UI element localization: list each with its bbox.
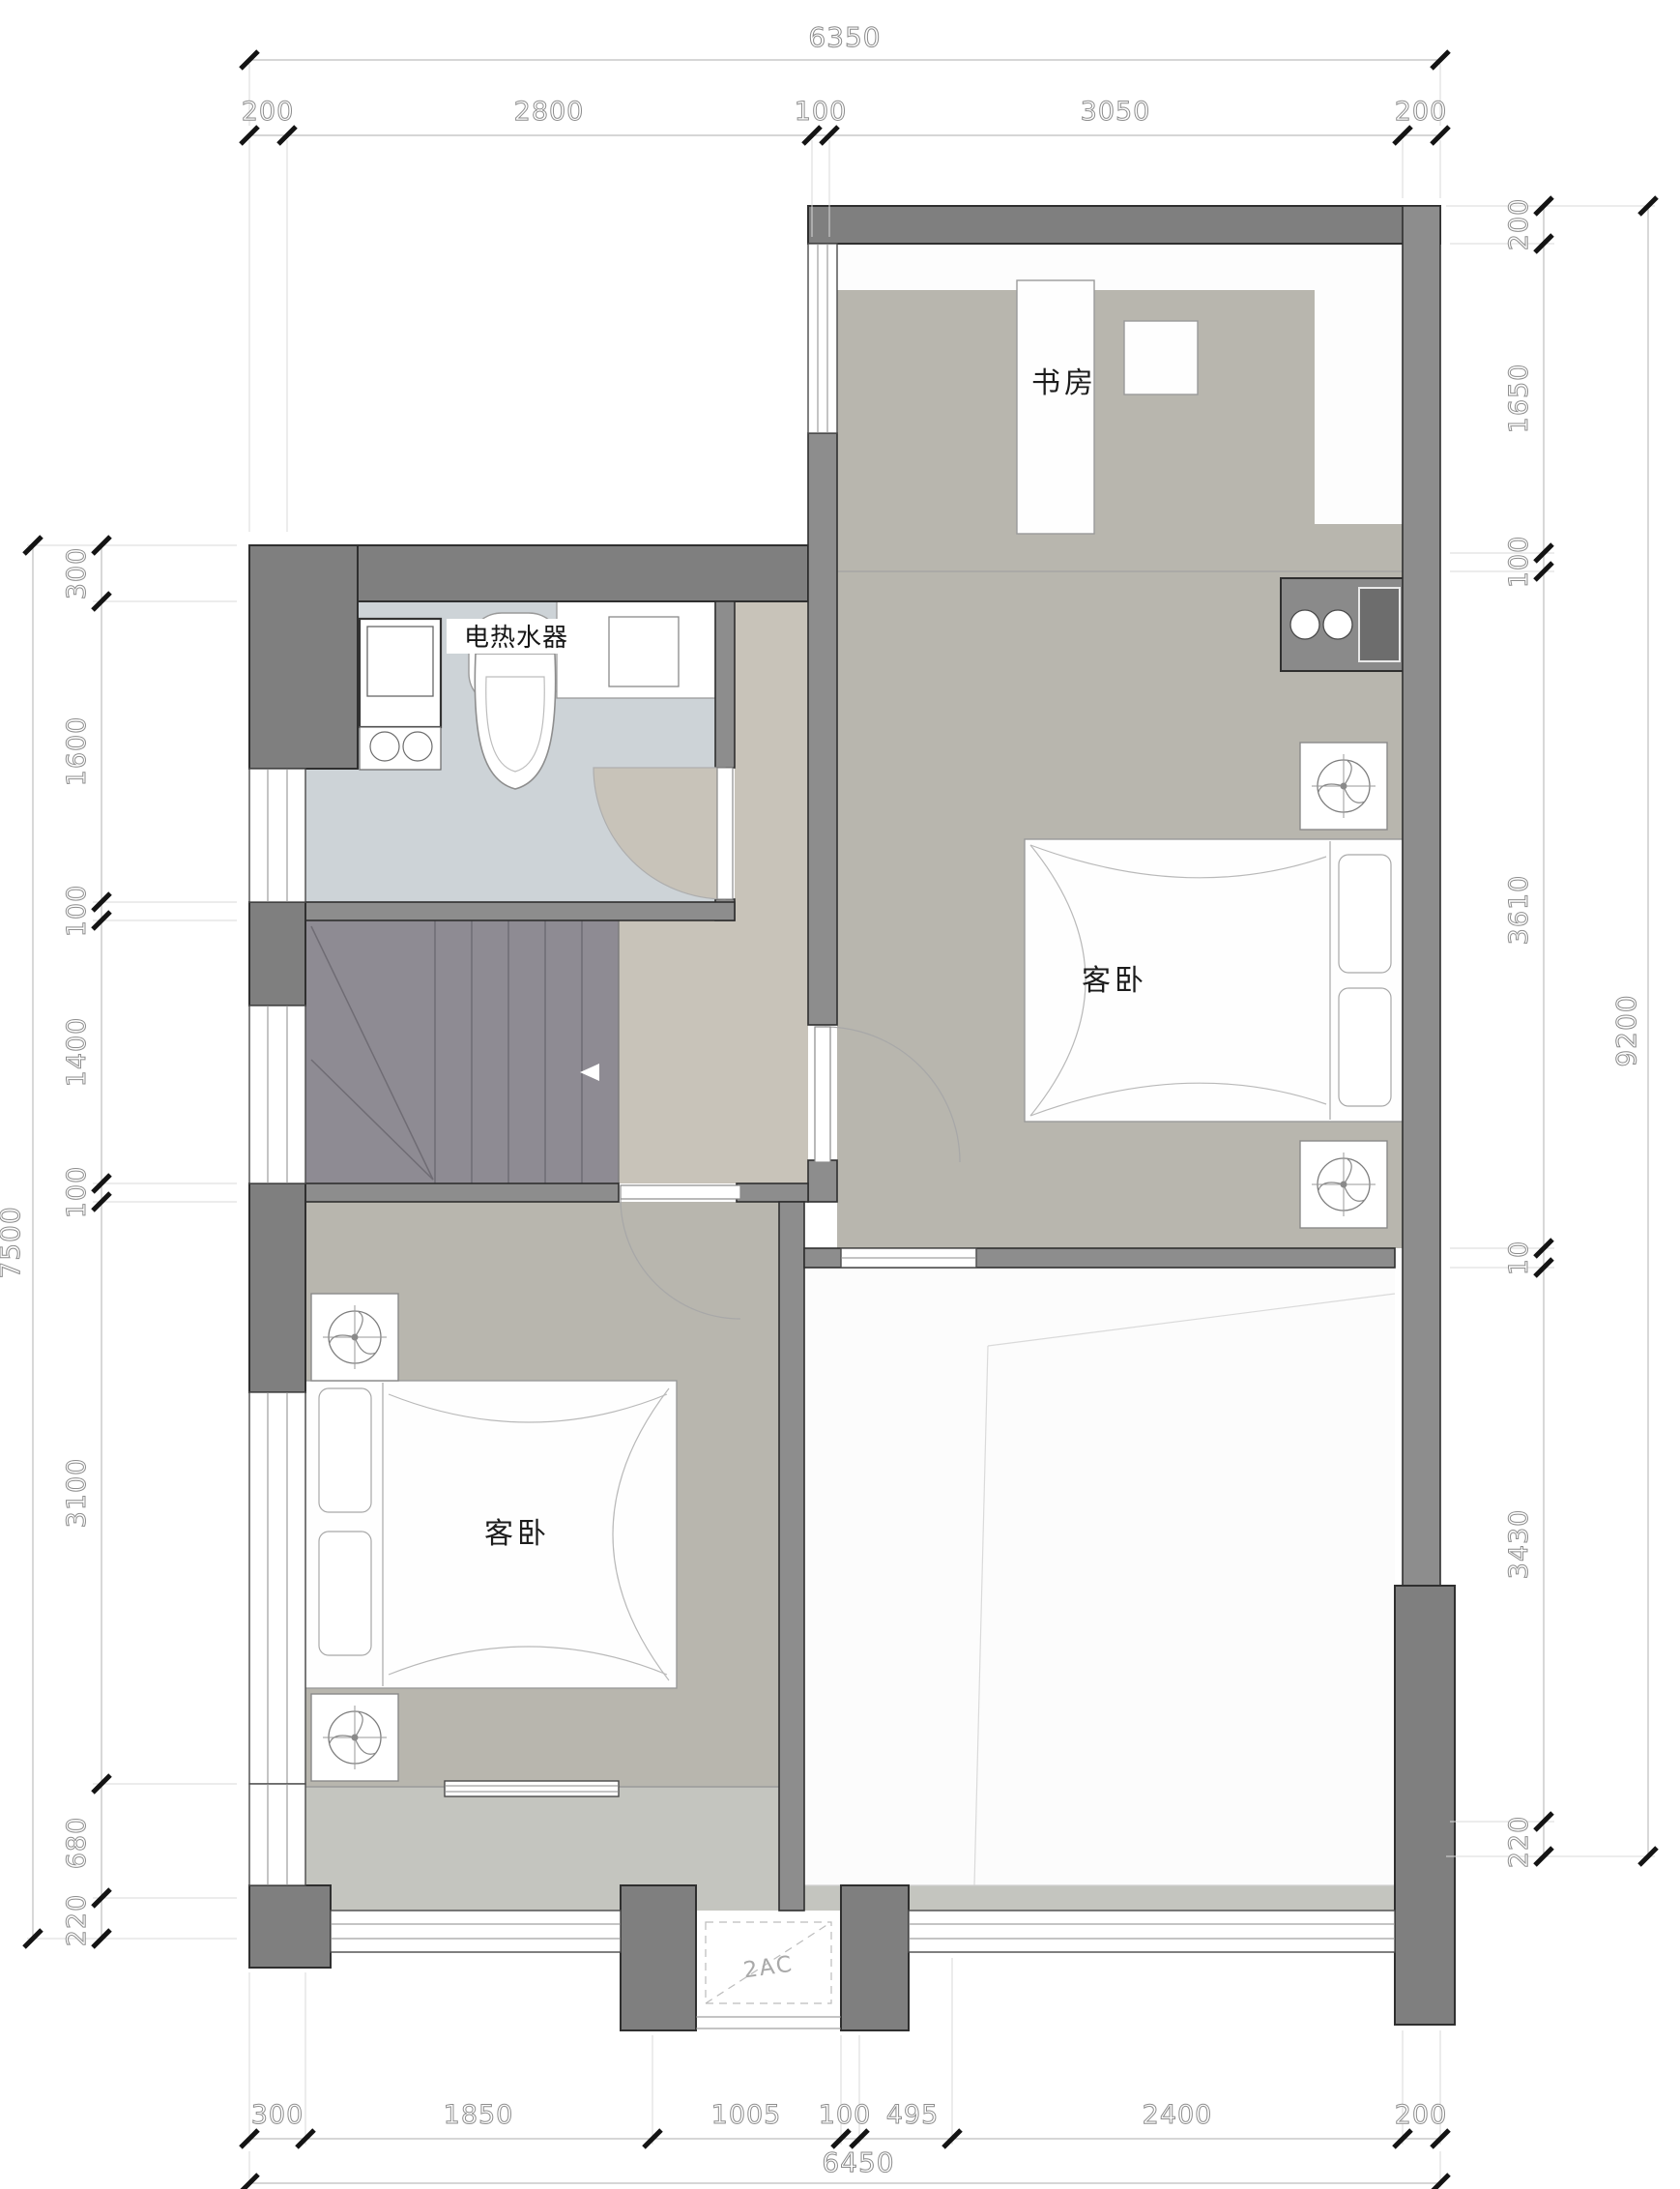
dim-label: 495 — [886, 2100, 940, 2130]
dim-label: 100 — [62, 1166, 92, 1219]
pillow — [319, 1532, 371, 1655]
pillow — [1339, 988, 1391, 1106]
dim-label: 3100 — [62, 1458, 92, 1529]
dim-label: 100 — [62, 885, 92, 938]
dim-label: 300 — [62, 547, 92, 600]
window-bedroom-left — [249, 1392, 305, 1784]
window-study-west — [808, 244, 837, 433]
sink-icon — [609, 617, 679, 686]
study-chair — [1124, 321, 1198, 394]
wall-bedroom-left-north — [737, 1183, 808, 1202]
dim-label: 3050 — [1081, 97, 1151, 127]
study-desk — [1017, 280, 1094, 534]
window-bottom-left — [331, 1911, 621, 1952]
dim-label: 100 — [795, 97, 848, 127]
wall-ac-niche-right — [841, 1885, 909, 2030]
dim-label: 200 — [1504, 198, 1534, 251]
stove-icon — [1359, 588, 1400, 661]
dim-label: 200 — [1395, 2100, 1448, 2130]
window-bathroom — [249, 769, 305, 902]
fan-unit-icon — [1300, 1141, 1387, 1228]
window-balcony-west — [249, 1784, 305, 1885]
dim-label: 6450 — [822, 2146, 894, 2178]
dim-label: 1005 — [711, 2100, 782, 2130]
floor-plan-drawing: 2AC 书房 客卧 客卧 电热水器 — [0, 0, 1680, 2189]
floor-balcony-left — [305, 1787, 779, 1911]
water-heater-label: 电热水器 — [464, 624, 568, 653]
wall-bathroom-east — [715, 601, 735, 768]
room-label-bedroom-left: 客卧 — [484, 1517, 550, 1551]
dim-label: 1400 — [62, 1017, 92, 1088]
wall-bottom-left-pier — [249, 1885, 331, 1968]
floor-plan-page: 2AC 书房 客卧 客卧 电热水器 — [0, 0, 1680, 2189]
wall-left-segment — [249, 1183, 305, 1392]
wall-bedroom-left-north — [305, 1183, 619, 1202]
wall-corner-pier — [249, 545, 358, 769]
dim-label: 10 — [1504, 1240, 1534, 1275]
basin-icon — [403, 732, 432, 761]
floor-stairs — [305, 920, 619, 1183]
window-bottom-right — [909, 1911, 1395, 1952]
dim-label: 200 — [1395, 97, 1448, 127]
fan-unit-icon — [311, 1694, 398, 1781]
washer-unit — [360, 619, 441, 770]
dim-label: 3430 — [1504, 1509, 1534, 1580]
wall-top — [808, 206, 1440, 244]
opening-white-room-north — [841, 1248, 976, 1268]
pillow — [319, 1388, 371, 1512]
dim-label: 3610 — [1504, 875, 1534, 946]
dim-label: 6350 — [808, 21, 881, 53]
door-leaf — [815, 1027, 830, 1162]
dim-label: 7500 — [0, 1206, 26, 1278]
wall-left-segment — [249, 902, 305, 1006]
basin-icon — [370, 732, 399, 761]
fan-unit-icon — [1300, 743, 1387, 830]
dim-label: 220 — [1504, 1816, 1534, 1869]
dim-label: 100 — [819, 2100, 872, 2130]
fan-unit-icon — [311, 1294, 398, 1381]
dim-label: 1600 — [62, 716, 92, 787]
dim-label: 9200 — [1610, 994, 1642, 1066]
floor-corridor — [735, 601, 808, 920]
dim-label: 2800 — [514, 97, 585, 127]
floor-white-room — [804, 1268, 1395, 1885]
window-stairs — [249, 1006, 305, 1183]
study-right-strip — [1315, 244, 1403, 524]
floors — [305, 244, 1403, 2021]
dim-label: 100 — [1504, 536, 1534, 589]
door-leaf — [621, 1185, 740, 1199]
dim-label: 220 — [62, 1894, 92, 1947]
door-leaf — [717, 768, 733, 899]
water-heater-label-group: 电热水器 — [447, 619, 586, 654]
floor-hall — [619, 920, 808, 1183]
wall-corridor-east — [808, 433, 837, 1025]
wall-white-room-west — [779, 1202, 804, 1911]
wall-right-lower — [1395, 1586, 1455, 2025]
wall-bathroom-south — [305, 902, 735, 920]
wall-ac-niche-left — [621, 1885, 696, 2030]
dim-label: 680 — [62, 1817, 92, 1870]
sink-tap-icon — [1290, 610, 1319, 639]
room-label-bedroom-right: 客卧 — [1082, 964, 1147, 998]
room-label-study: 书房 — [1031, 366, 1097, 400]
dim-label: 300 — [251, 2100, 304, 2130]
dim-label: 200 — [242, 97, 295, 127]
pillow — [1339, 855, 1391, 973]
wall-stub — [808, 1160, 837, 1202]
wall-right-upper — [1403, 206, 1440, 1586]
sink-tap-icon — [1323, 610, 1352, 639]
window-bedroom-balcony — [445, 1781, 619, 1796]
dim-label: 1650 — [1504, 364, 1534, 434]
dim-label: 2400 — [1143, 2100, 1213, 2130]
kitchenette-unit — [1281, 578, 1406, 671]
dim-label: 1850 — [444, 2100, 514, 2130]
